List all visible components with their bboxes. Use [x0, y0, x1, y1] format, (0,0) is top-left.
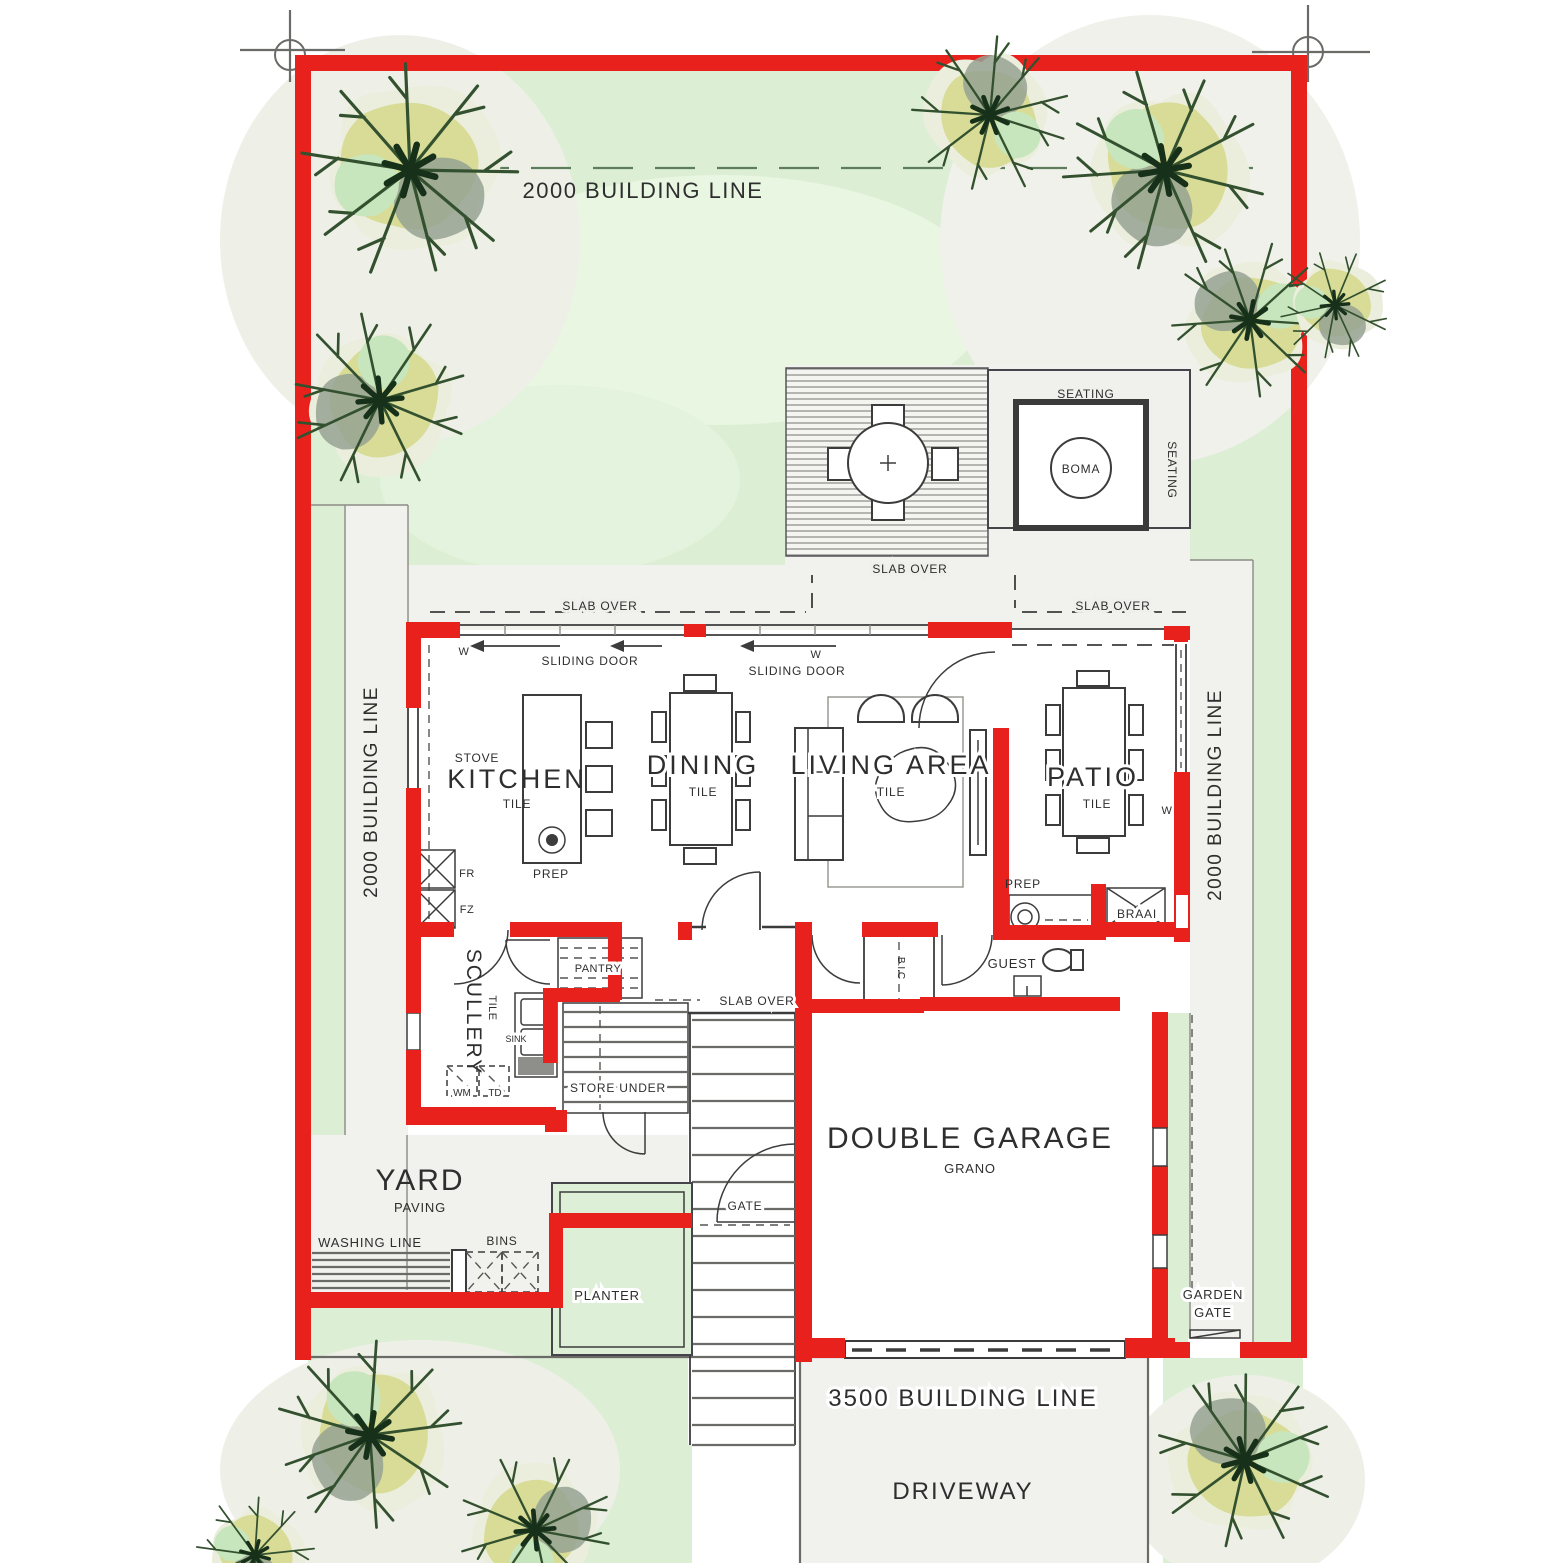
kitchen-prep-label: PREP — [533, 867, 569, 881]
bic-label: B.I.C — [895, 957, 906, 979]
site-plan: 2000 BUILDING LINE 2000 BUILDING LINE 20… — [0, 0, 1563, 1563]
living-finish-label: TILE — [877, 785, 906, 799]
scullery-finish-label: TILE — [486, 995, 498, 1020]
dining-label: DINING — [647, 750, 760, 780]
stove-label: STOVE — [455, 751, 499, 765]
pantry-label: PANTRY — [575, 963, 622, 975]
site-plan-drawing: 2000 BUILDING LINE 2000 BUILDING LINE 20… — [0, 0, 1563, 1563]
yard-label: YARD — [375, 1164, 464, 1197]
window-marker: W — [811, 649, 822, 661]
garage-door — [845, 1341, 1125, 1358]
timber-deck — [786, 368, 988, 556]
living-label: LIVING AREA — [790, 750, 991, 780]
patio-prep-label: PREP — [1005, 877, 1041, 891]
bins-label: BINS — [486, 1234, 517, 1248]
freezer-label: FZ — [460, 904, 474, 916]
garage-label: DOUBLE GARAGE — [827, 1122, 1113, 1155]
slab-over-east-label: SLAB OVER — [1075, 599, 1150, 613]
seating-side-label: SEATING — [1165, 441, 1179, 498]
sink-label: SINK — [505, 1034, 526, 1044]
window-marker: W — [1162, 805, 1173, 817]
building-line-front-label: 3500 BUILDING LINE — [828, 1385, 1097, 1412]
td-label: TD — [488, 1088, 501, 1099]
building-line-top-label: 2000 BUILDING LINE — [523, 178, 764, 203]
guest-wc-label: GUEST — [988, 956, 1037, 971]
window-marker: W — [459, 646, 470, 658]
slab-over-west-label: SLAB OVER — [562, 599, 637, 613]
driveway-label: DRIVEWAY — [892, 1478, 1033, 1505]
slab-over-deck-label: SLAB OVER — [872, 562, 947, 576]
kitchen-label: KITCHEN — [447, 764, 587, 794]
planter-box — [552, 1183, 692, 1355]
yard-finish-label: PAVING — [394, 1200, 446, 1215]
garden-gate-label-1: GARDEN — [1183, 1287, 1243, 1302]
garden-gate-label-2: GATE — [1194, 1305, 1232, 1320]
garage-finish-label: GRANO — [944, 1161, 996, 1176]
patio-label: PATIO — [1047, 762, 1139, 792]
washing-line-label: WASHING LINE — [318, 1235, 422, 1250]
kitchen-finish-label: TILE — [503, 797, 532, 811]
planter-label: PLANTER — [574, 1288, 640, 1303]
sliding-door-1-label: SLIDING DOOR — [542, 654, 639, 668]
sliding-door-2-label: SLIDING DOOR — [749, 664, 846, 678]
braai-label: BRAAI — [1117, 907, 1157, 921]
wm-label: WM — [453, 1088, 471, 1099]
gate-label: GATE — [728, 1199, 763, 1213]
fridge-label: FR — [459, 868, 475, 880]
dining-finish-label: TILE — [689, 785, 718, 799]
building-line-right-label: 2000 BUILDING LINE — [1205, 689, 1226, 901]
store-under-label: STORE UNDER — [570, 1081, 666, 1095]
seating-top-label: SEATING — [1057, 387, 1114, 401]
slab-over-entry-label: SLAB OVER — [719, 994, 794, 1008]
scullery-label: SCULLERY — [462, 949, 485, 1076]
patio-finish-label: TILE — [1083, 797, 1112, 811]
boma-label: BOMA — [1062, 462, 1101, 476]
building-line-left-label: 2000 BUILDING LINE — [361, 686, 382, 898]
